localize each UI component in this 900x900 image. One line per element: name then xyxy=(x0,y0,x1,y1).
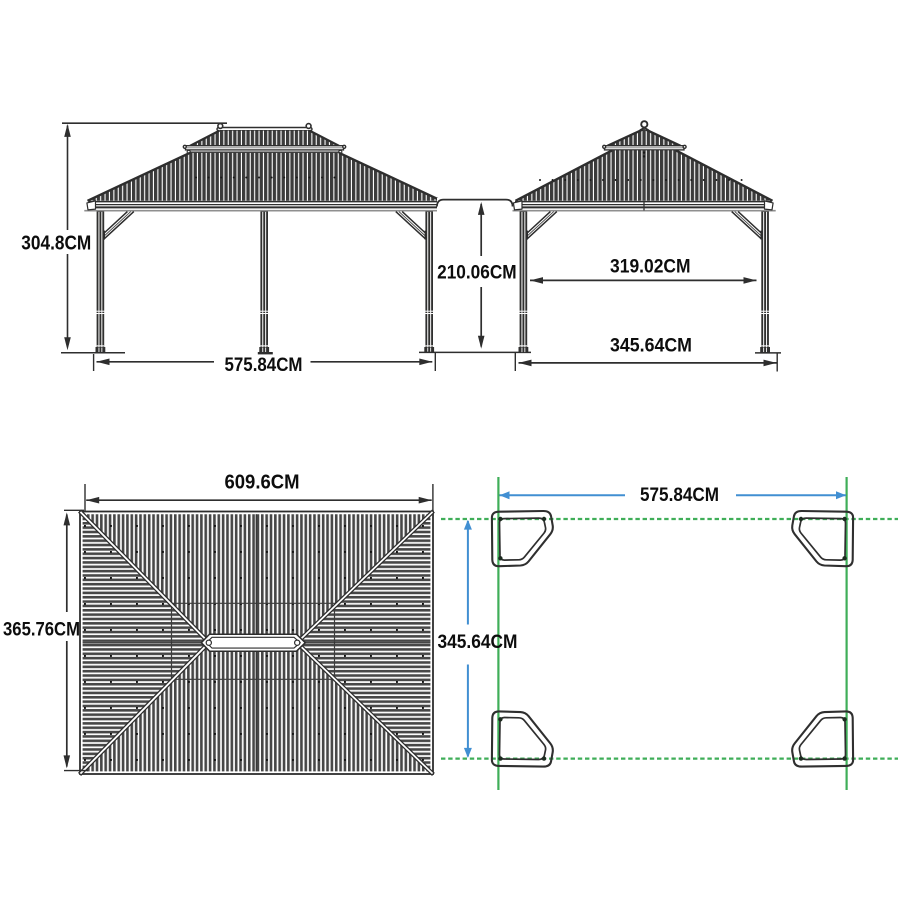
svg-text:210.06CM: 210.06CM xyxy=(437,263,517,284)
svg-text:575.84CM: 575.84CM xyxy=(640,485,719,506)
svg-text:609.6CM: 609.6CM xyxy=(225,472,300,494)
svg-text:319.02CM: 319.02CM xyxy=(610,256,691,277)
svg-text:575.84CM: 575.84CM xyxy=(225,355,303,376)
svg-text:345.64CM: 345.64CM xyxy=(610,336,692,357)
svg-text:304.8CM: 304.8CM xyxy=(21,233,91,255)
svg-text:345.64CM: 345.64CM xyxy=(438,632,518,653)
svg-text:365.76CM: 365.76CM xyxy=(3,619,80,641)
